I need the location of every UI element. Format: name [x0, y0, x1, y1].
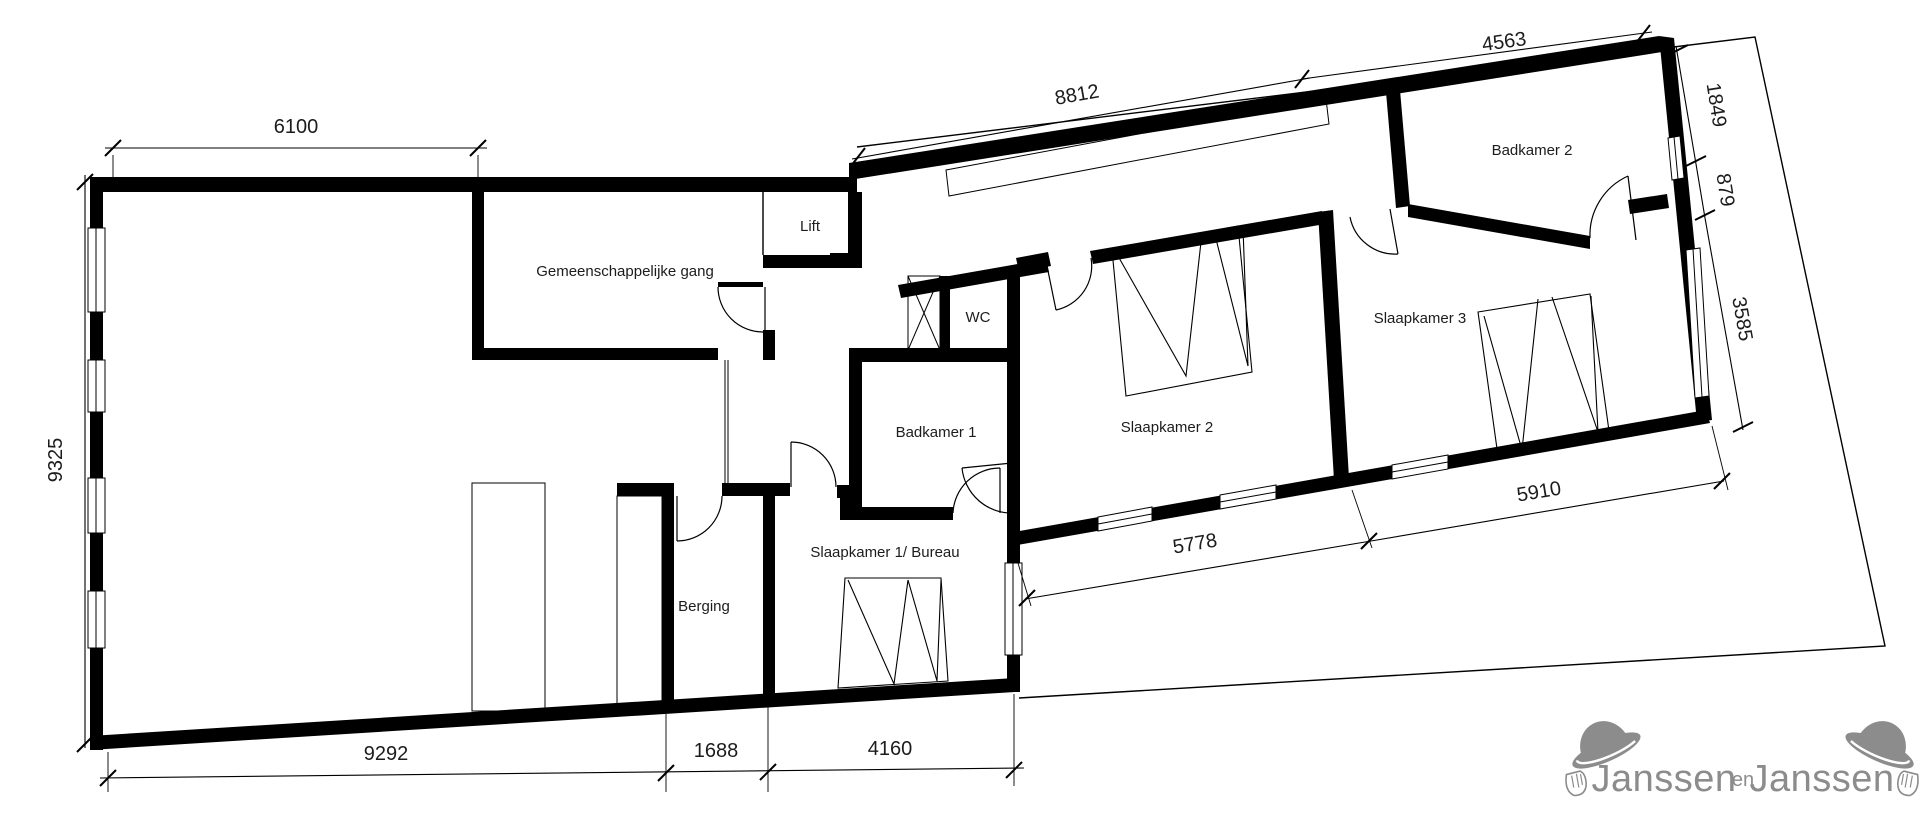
room-label-lift: Lift: [800, 218, 821, 235]
room-label-gemeenschappelijke-gang: Gemeenschappelijke gang: [536, 263, 714, 280]
dimension-right-lower: 3585: [1705, 218, 1757, 432]
dimension-label: 3585: [1727, 295, 1756, 343]
walls: [90, 36, 1712, 750]
dimension-label: 5910: [1515, 478, 1563, 507]
dimension-left-height: 9325: [45, 174, 93, 752]
dimension-label: 9292: [364, 743, 409, 765]
room-label-slaapkamer-2: Slaapkamer 2: [1121, 419, 1214, 436]
room-label-slaapkamer-3: Slaapkamer 3: [1374, 310, 1467, 327]
floor-plan-drawing: 6100 9325 9292 1688 4160: [0, 0, 1920, 828]
logo: Janssen en Janssen: [1560, 708, 1920, 800]
dimensions: 6100 9325 9292 1688 4160: [45, 25, 1757, 792]
dimension-label: 8812: [1053, 80, 1101, 109]
windows: [88, 136, 1709, 655]
dimension-label: 1849: [1702, 81, 1731, 128]
logo-word-2: Janssen: [1749, 758, 1894, 800]
room-label-berging: Berging: [678, 598, 730, 615]
dimension-label: 5778: [1171, 530, 1219, 559]
room-label-slaapkamer-1-bureau: Slaapkamer 1/ Bureau: [810, 544, 959, 561]
dimension-label: 879: [1711, 172, 1738, 208]
floor-plan-page: 6100 9325 9292 1688 4160: [0, 0, 1920, 828]
room-label-badkamer-1: Badkamer 1: [896, 424, 977, 441]
dimension-right-middle: 879: [1695, 164, 1738, 220]
hand-icon-left: [1564, 770, 1588, 796]
hand-icon-right: [1896, 770, 1920, 796]
room-label-badkamer-2: Badkamer 2: [1492, 142, 1573, 159]
dimension-label: 4563: [1481, 28, 1528, 56]
dimension-label: 4160: [868, 738, 913, 760]
dimension-label: 1688: [694, 740, 739, 762]
room-label-wc: WC: [966, 309, 991, 326]
logo-word-1: Janssen: [1591, 758, 1736, 800]
dimension-label: 6100: [274, 116, 319, 138]
dimension-label: 9325: [45, 438, 67, 483]
